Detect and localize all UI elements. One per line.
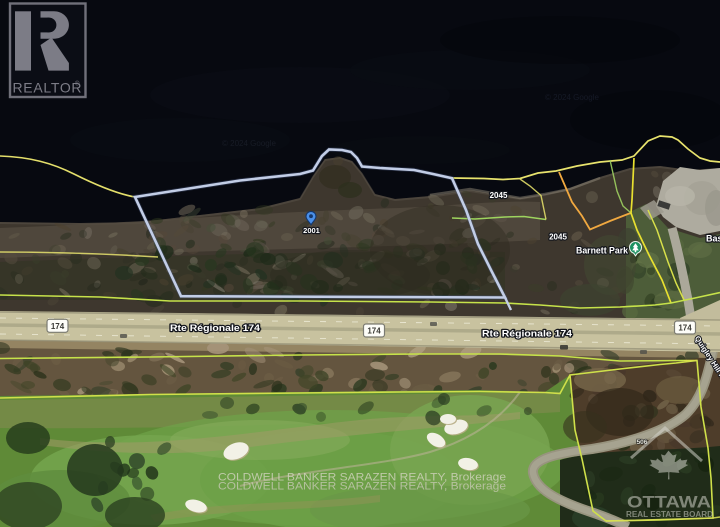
- svg-text:COLDWELL BANKER SARAZEN REALTY: COLDWELL BANKER SARAZEN REALTY, Brokerag…: [218, 481, 506, 493]
- svg-text:Rte Régionale 174: Rte Régionale 174: [482, 329, 572, 339]
- svg-text:Rte Régionale 174: Rte Régionale 174: [170, 323, 260, 333]
- svg-text:174: 174: [678, 324, 692, 333]
- svg-text:®: ®: [75, 81, 80, 88]
- svg-text:© 2024 Google: © 2024 Google: [545, 93, 599, 102]
- svg-text:174: 174: [51, 322, 65, 331]
- svg-text:OTTAWA: OTTAWA: [627, 493, 711, 512]
- svg-text:Barnett Park: Barnett Park: [576, 246, 629, 256]
- svg-text:2045: 2045: [549, 233, 567, 242]
- svg-text:174: 174: [367, 327, 381, 336]
- svg-text:2001: 2001: [303, 226, 320, 235]
- svg-text:Bas: Bas: [706, 234, 720, 244]
- svg-text:2045: 2045: [490, 191, 508, 200]
- svg-text:REALTOR: REALTOR: [13, 80, 83, 96]
- svg-text:© 2024 Google: © 2024 Google: [222, 139, 276, 148]
- svg-text:REAL ESTATE BOARD: REAL ESTATE BOARD: [626, 510, 713, 519]
